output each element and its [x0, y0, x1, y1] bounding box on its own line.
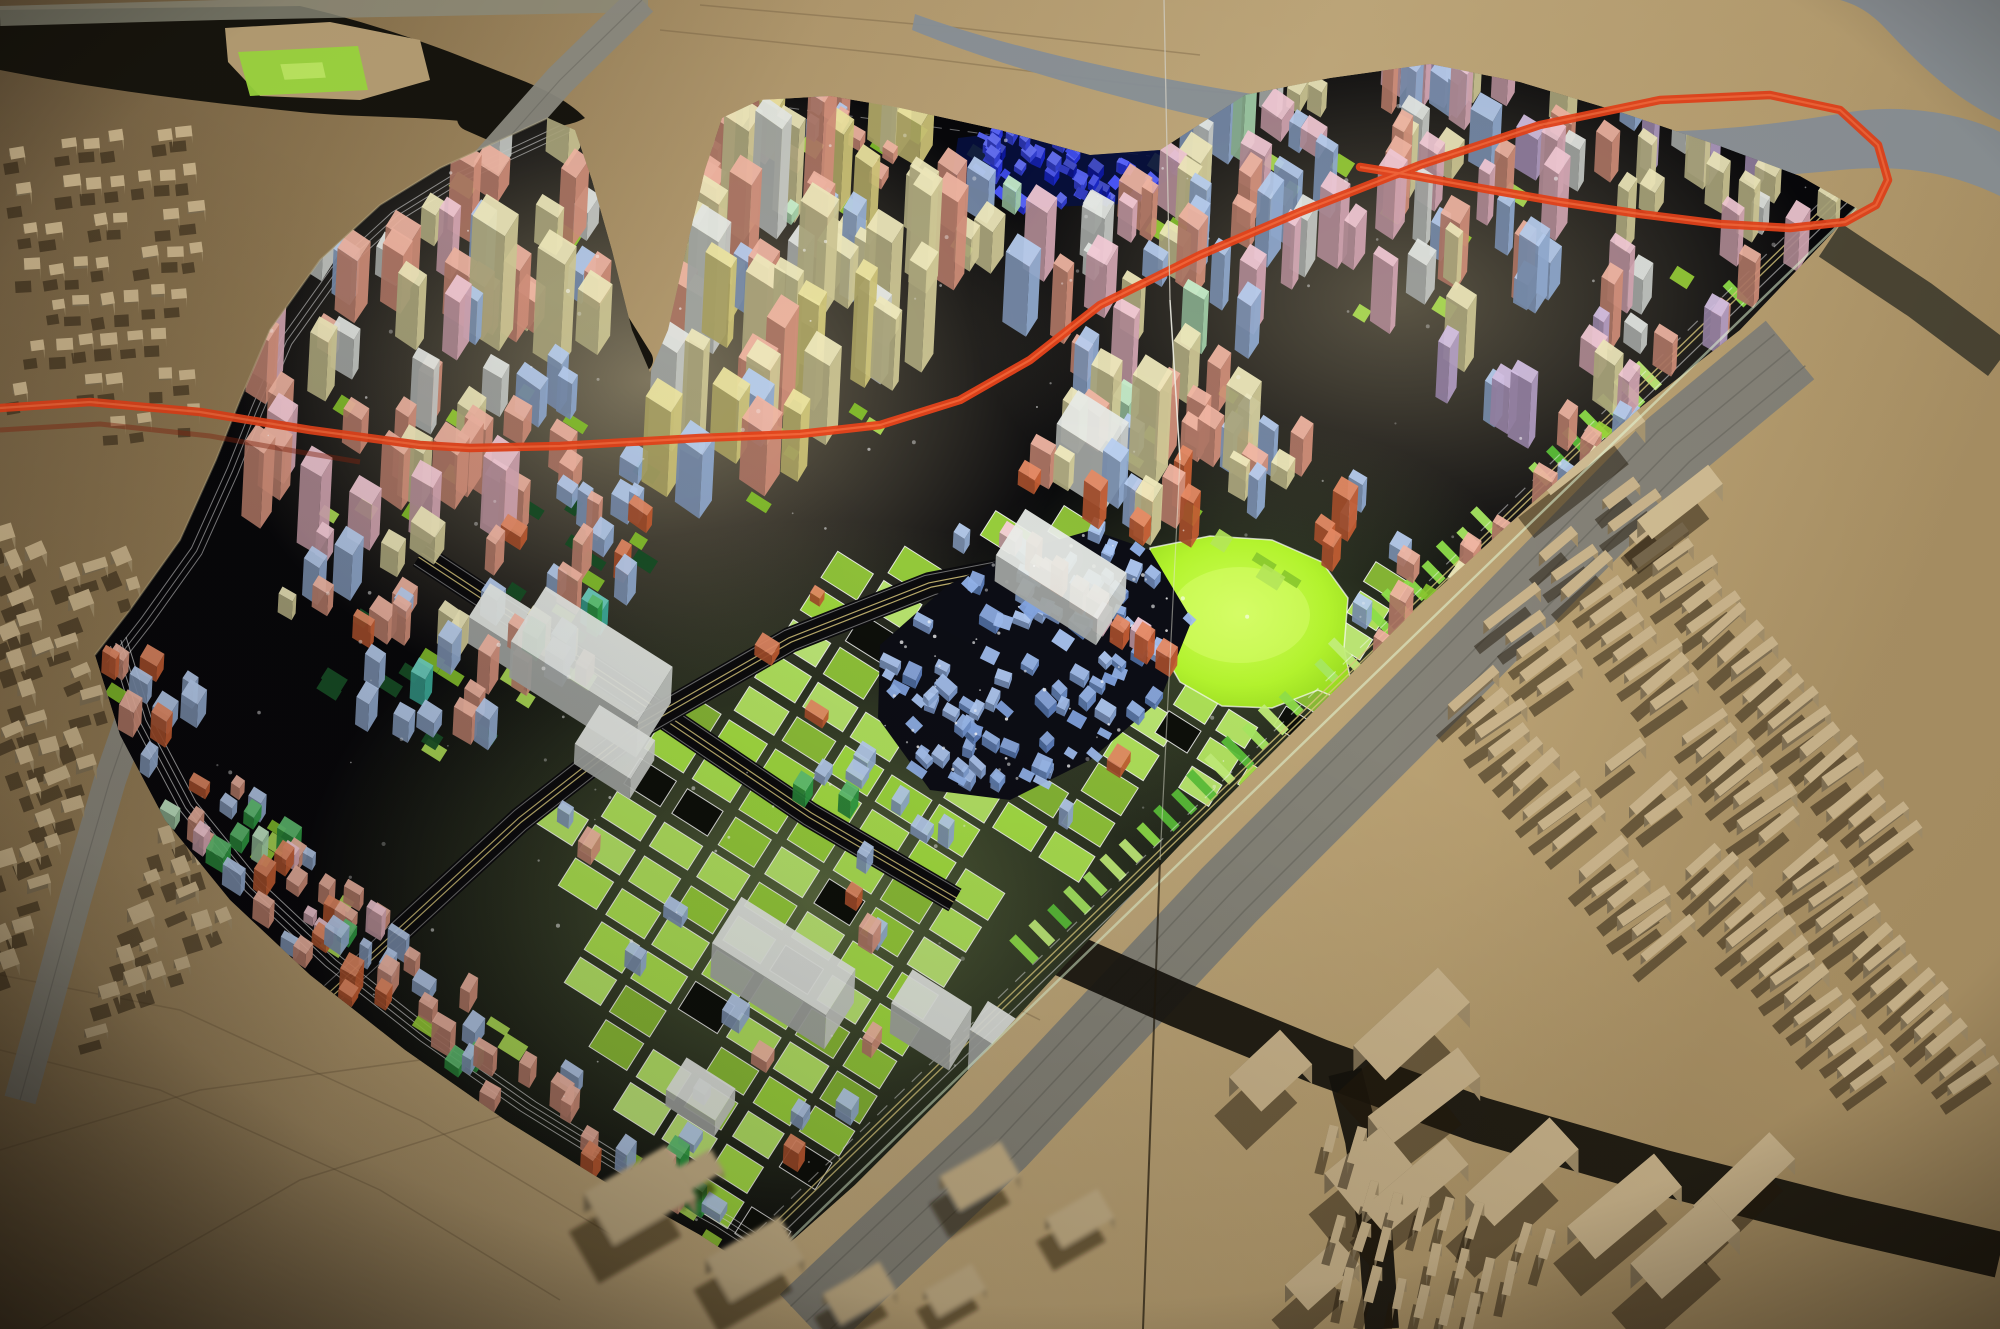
scene-canvas: [0, 0, 2000, 1329]
vignette: [0, 0, 2000, 1329]
urban-planning-model-photo: Illuminated urban-planning scale model v…: [0, 0, 2000, 1329]
